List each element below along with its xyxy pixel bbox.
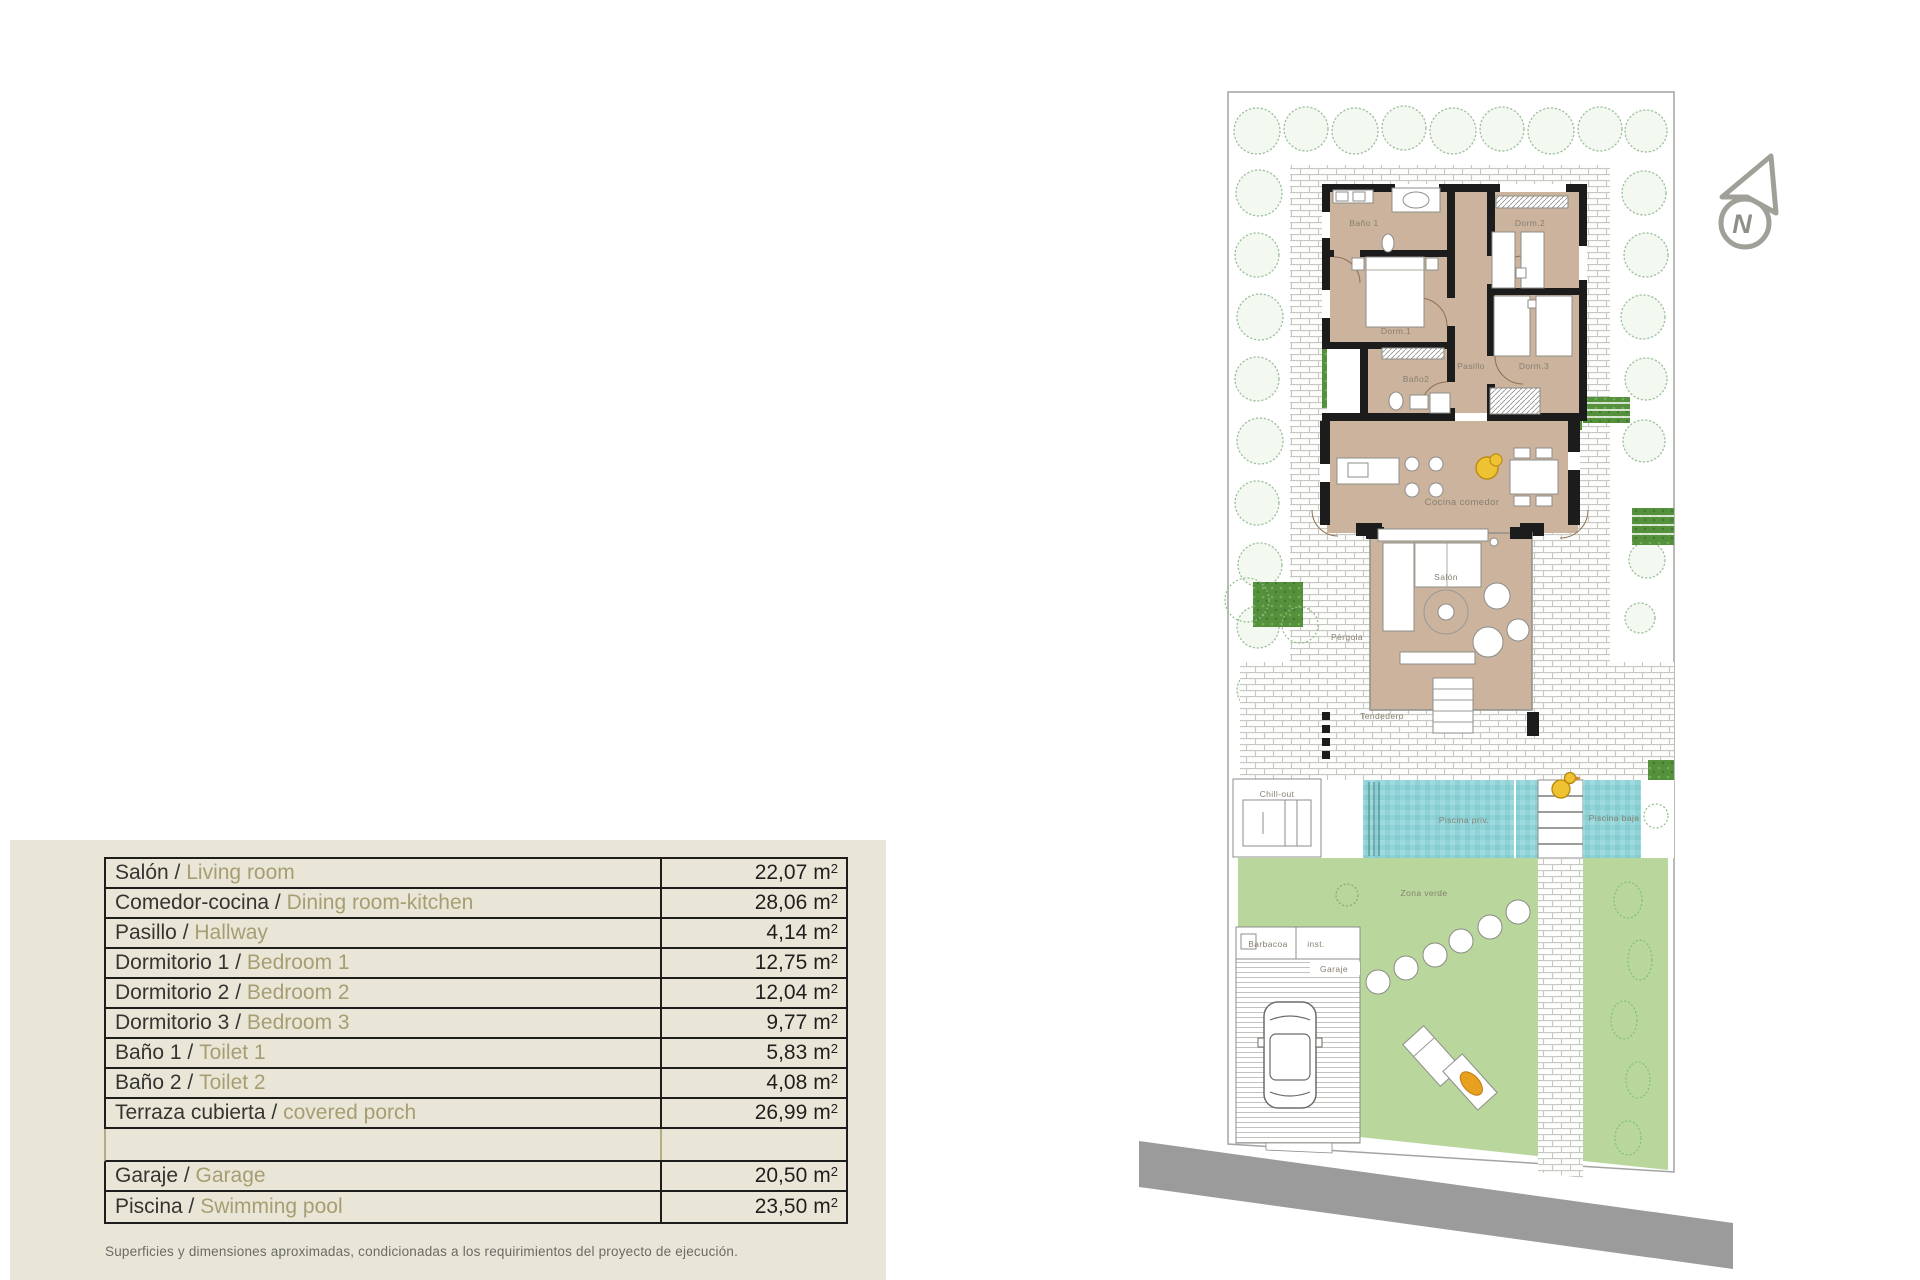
room-area: 28,06m2 — [662, 889, 846, 917]
room-name-es: Pasillo — [115, 921, 177, 945]
room-name-es: Baño 1 — [115, 1041, 182, 1065]
page: { "table": { "separator": " / ", "rows":… — [0, 0, 1920, 1280]
label-barbacoa: Barbacoa — [1248, 939, 1288, 949]
separator: / — [182, 1041, 200, 1065]
label-dorm3: Dorm.3 — [1519, 361, 1549, 371]
table-footnote: Superficies y dimensiones aproximadas, c… — [105, 1244, 738, 1259]
room-area: 12,75m2 — [662, 949, 846, 977]
label-pasillo: Pasillo — [1457, 361, 1485, 371]
label-zona-verde: Zona verde — [1401, 888, 1448, 898]
table-row: Pasillo / Hallway 4,14m2 — [104, 919, 848, 949]
separator: / — [229, 1011, 247, 1035]
separator: / — [177, 921, 195, 945]
table-row: Comedor-cocina / Dining room-kitchen 28,… — [104, 889, 848, 919]
room-name-en: Bedroom 1 — [247, 951, 350, 975]
room-name-es: Piscina — [115, 1195, 183, 1219]
table-row: Dormitorio 1 / Bedroom 1 12,75m2 — [104, 949, 848, 979]
room-name-en: Bedroom 2 — [247, 981, 350, 1005]
room-name-en: Toilet 1 — [199, 1041, 266, 1065]
car — [1258, 1002, 1322, 1108]
table-spacer-row — [104, 1129, 848, 1162]
room-area: 23,50m2 — [662, 1192, 846, 1222]
table-row: Garaje / Garage 20,50m2 — [104, 1162, 848, 1192]
separator: / — [229, 981, 247, 1005]
room-area: 4,14m2 — [662, 919, 846, 947]
label-bano1: Baño 1 — [1349, 218, 1378, 228]
label-chillout: Chill-out — [1260, 789, 1295, 799]
table-row: Salón / Living room 22,07m2 — [104, 859, 848, 889]
compass-letter: N — [1732, 209, 1752, 239]
room-name-en: Swimming pool — [200, 1195, 342, 1219]
separator: / — [266, 1101, 284, 1125]
room-area: 26,99m2 — [662, 1099, 846, 1127]
table-row: Dormitorio 2 / Bedroom 2 12,04m2 — [104, 979, 848, 1009]
separator: / — [178, 1164, 196, 1188]
room-area: 20,50m2 — [662, 1162, 846, 1190]
label-tendedero: Tendedero — [1360, 711, 1404, 721]
room-name-en: Garage — [196, 1164, 266, 1188]
north-compass-icon: N — [1721, 156, 1776, 247]
label-piscina-baja: Piscina baja — [1589, 813, 1640, 823]
room-name-es: Garaje — [115, 1164, 178, 1188]
room-name-es: Dormitorio 2 — [115, 981, 229, 1005]
room-name-en: Hallway — [194, 921, 268, 945]
room-name-es: Comedor-cocina — [115, 891, 269, 915]
label-dorm1: Dorm.1 — [1381, 326, 1411, 336]
separator: / — [169, 861, 187, 885]
label-inst: inst. — [1307, 939, 1325, 949]
room-name-en: Bedroom 3 — [247, 1011, 350, 1035]
separator: / — [183, 1195, 201, 1219]
room-name-es: Dormitorio 3 — [115, 1011, 229, 1035]
table-row: Piscina / Swimming pool 23,50m2 — [104, 1192, 848, 1222]
room-name-en: covered porch — [283, 1101, 416, 1125]
room-area: 9,77m2 — [662, 1009, 846, 1037]
room-area: 5,83m2 — [662, 1039, 846, 1067]
room-name-en: Dining room-kitchen — [287, 891, 474, 915]
separator: / — [229, 951, 247, 975]
label-piscina-priv: Piscina priv. — [1439, 815, 1489, 825]
room-areas-table: Salón / Living room 22,07m2 Comedor-coci… — [104, 857, 848, 1224]
label-bano2: Baño2 — [1403, 374, 1430, 384]
label-dorm2: Dorm.2 — [1515, 218, 1545, 228]
room-area: 12,04m2 — [662, 979, 846, 1007]
label-salon: Salón — [1434, 572, 1458, 582]
room-name-en: Toilet 2 — [199, 1071, 266, 1095]
separator: / — [182, 1071, 200, 1095]
table-row: Terraza cubierta / covered porch 26,99m2 — [104, 1099, 848, 1129]
table-row: Baño 2 / Toilet 2 4,08m2 — [104, 1069, 848, 1099]
room-area: 22,07m2 — [662, 859, 846, 887]
tree-row-top — [1234, 106, 1667, 154]
room-name-es: Dormitorio 1 — [115, 951, 229, 975]
separator: / — [269, 891, 287, 915]
label-pergola: Pérgola — [1331, 632, 1363, 642]
label-cocina: Cocina comedor — [1425, 497, 1500, 508]
room-name-en: Living room — [186, 861, 295, 885]
room-name-es: Terraza cubierta — [115, 1101, 266, 1125]
garden-path-bricks — [1538, 858, 1583, 1178]
room-area: 4,08m2 — [662, 1069, 846, 1097]
room-name-es: Salón — [115, 861, 169, 885]
site-plan: Baño 1 Dorm.2 Dorm.1 Baño2 Pasillo Dorm.… — [1100, 70, 1820, 1280]
table-row: Baño 1 / Toilet 1 5,83m2 — [104, 1039, 848, 1069]
table-row: Dormitorio 3 / Bedroom 3 9,77m2 — [104, 1009, 848, 1039]
label-garaje: Garaje — [1320, 964, 1348, 974]
room-name-es: Baño 2 — [115, 1071, 182, 1095]
